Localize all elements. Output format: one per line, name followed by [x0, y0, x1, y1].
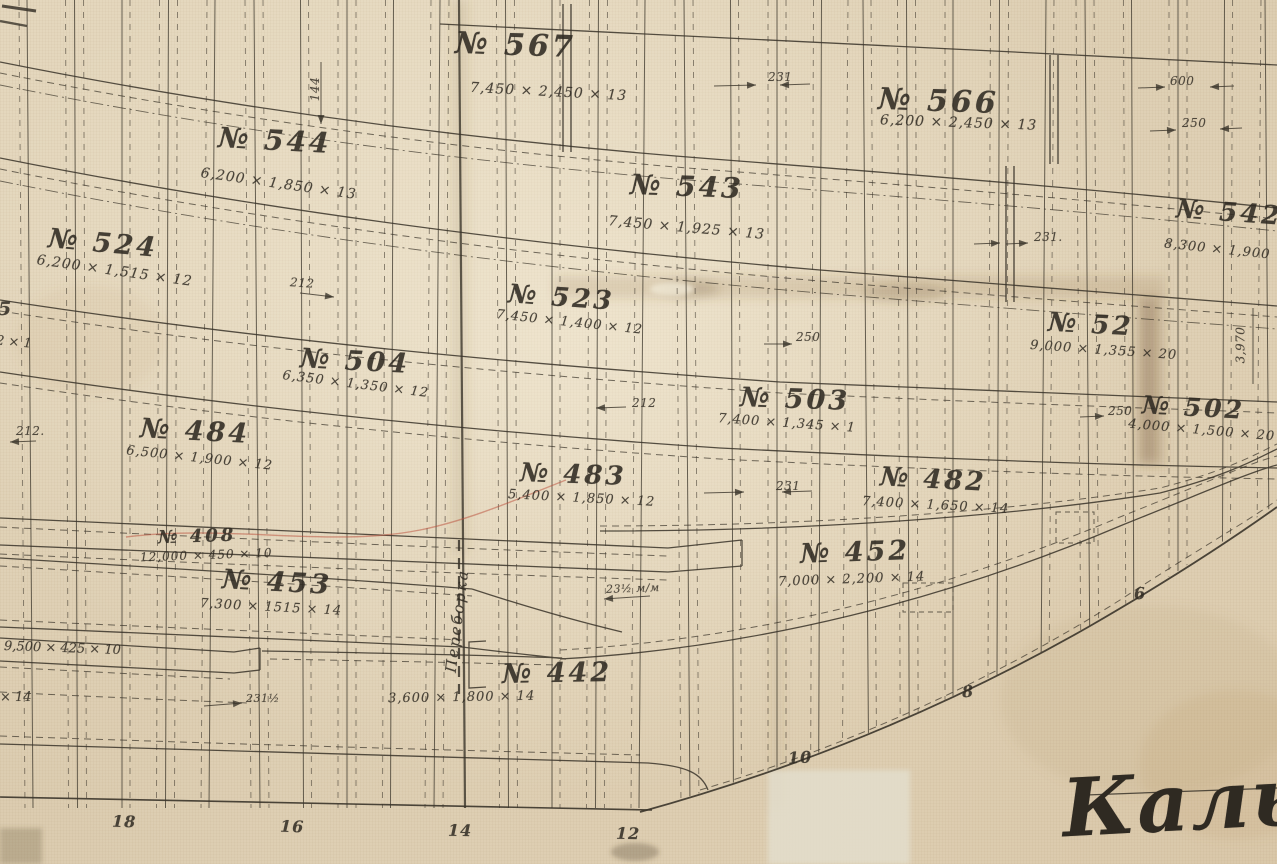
plate-567-number: № 567: [454, 26, 576, 65]
measurement-250-a: 250: [1182, 116, 1206, 130]
plate-503-number: № 503: [739, 382, 850, 417]
plate-543-number: № 543: [629, 168, 744, 205]
measurement-231mm: 23½ м/м: [606, 581, 660, 596]
plate-408-number: № 408: [158, 525, 237, 549]
plate-442-size: 3,600 × 1,800 × 14: [388, 689, 536, 707]
measurement-231-b: 231.: [1034, 230, 1063, 244]
measurement-212-a: 212: [290, 275, 315, 291]
station-8: 8: [961, 682, 974, 702]
station-10: 10: [788, 747, 813, 767]
station-6: 6: [1133, 584, 1147, 604]
station-12: 12: [616, 824, 641, 843]
plate-482-number: № 482: [879, 462, 987, 498]
station-14: 14: [448, 821, 473, 840]
edge-fragment-size: 2 × 1: [0, 333, 32, 351]
station-16: 16: [280, 817, 305, 837]
edge-fragment-number: 5: [0, 298, 11, 320]
blueprint-sheet: № 567 7,450 × 2,450 × 13 № 566 6,200 × 2…: [0, 0, 1277, 864]
measurement-231-c: 231: [776, 479, 800, 493]
measurement-212-c: 212.: [16, 424, 45, 438]
measurement-250-c: 250: [1108, 404, 1132, 418]
measurement-231half: 231½: [246, 692, 280, 705]
plate-453-number: № 453: [221, 564, 333, 601]
measurement-231-top: 231: [768, 70, 792, 84]
plate-452-number: № 452: [799, 535, 910, 570]
edge-thickness: × 14: [0, 690, 32, 705]
plate-544-number: № 544: [217, 121, 332, 160]
measurement-144: 144: [308, 77, 322, 101]
plate-483-number: № 483: [520, 458, 628, 492]
tracing-paper-stamp: Кальки: [1060, 743, 1277, 856]
dimension-arrows: [10, 62, 1253, 707]
plate-484-number: № 484: [139, 413, 251, 450]
measurement-212-b: 212: [632, 396, 656, 410]
plate-442-number: № 442: [502, 657, 613, 690]
measurement-3970: 3,970: [1233, 327, 1247, 364]
measurement-250-b: 250: [796, 330, 820, 344]
plate-52-number: № 52: [1047, 308, 1134, 342]
measurement-600: 600: [1170, 74, 1194, 88]
station-18: 18: [112, 812, 137, 832]
